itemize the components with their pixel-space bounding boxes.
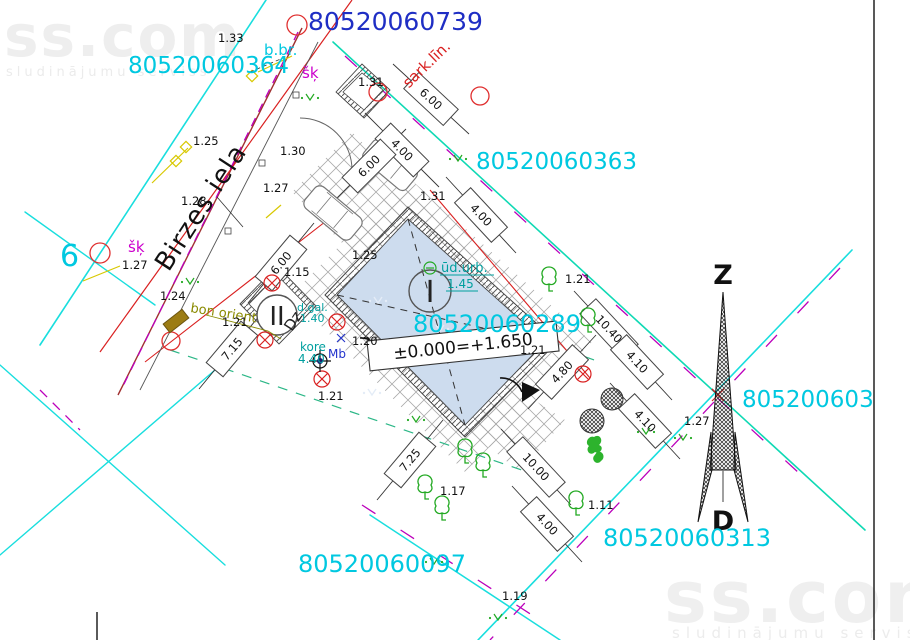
compass-north-label: Z	[713, 260, 733, 291]
spot-elevation: 1.25	[193, 134, 219, 148]
spot-elevation: 1.25	[352, 248, 378, 262]
spot-elevation: 1.21	[565, 272, 591, 286]
spot-elevation: 1.24	[160, 289, 186, 303]
spot-elevation: 1.30	[280, 144, 306, 158]
annotation-material: Mb	[328, 347, 346, 361]
spot-elevation: 1.17	[440, 484, 466, 498]
spot-elevation: 1.31	[420, 189, 446, 203]
parcel-number: 6	[60, 239, 79, 274]
spot-elevation: 1.15	[284, 265, 310, 279]
building-2-number: II	[269, 302, 284, 332]
parcel-number: 80520060097	[298, 550, 466, 578]
boundary-sw-1	[0, 365, 225, 565]
parcel-number: 80520060739	[308, 7, 483, 36]
annotation-ridge-value: 4.40	[298, 352, 325, 366]
bushes	[587, 436, 604, 463]
north-arrow: Z D	[698, 260, 748, 537]
parcel-number: 805200603	[742, 387, 874, 413]
parcel-number: 80520060289	[413, 310, 581, 338]
parcel-number: 80520060363	[476, 149, 637, 175]
spot-elevation: 1.33	[218, 31, 244, 45]
spot-elevation: 1.27	[263, 181, 289, 195]
spot-elevation: 1.20	[352, 334, 378, 348]
annotation-borehole-elev: 1.45	[447, 277, 474, 291]
site-plan-page: ss.com sludinājumu serviss ss.com sludin…	[0, 0, 910, 640]
annotation-borehole: ūd.urb.	[441, 261, 488, 276]
site-plan-drawing: ss.com sludinājumu serviss ss.com sludin…	[0, 0, 910, 640]
annotation-dgal-value: 1.40	[300, 312, 325, 325]
building-1-number: I	[426, 275, 435, 310]
large-tree-canopies	[580, 388, 623, 433]
spot-elevation: 1.21	[520, 343, 546, 357]
spot-elevation: 1.27	[684, 414, 710, 428]
spot-elevation: 1.21	[318, 389, 344, 403]
annotation-shk: šķ	[128, 238, 145, 256]
watermark-bottom-right: ss.com sludinājumu serviss	[664, 555, 910, 640]
spot-elevation: 1.28.	[181, 194, 210, 208]
annotation-b-br: b.br.	[264, 41, 297, 59]
spot-elevation: 1.11	[588, 498, 614, 512]
spot-elevation: 1.27	[122, 258, 148, 272]
spot-elevation: 1.21	[222, 315, 248, 329]
spot-elevation: 1.31	[358, 75, 384, 89]
spot-elevation: 1.19	[502, 589, 528, 603]
concrete-marker	[163, 309, 189, 332]
annotation-shk: šķ	[302, 64, 319, 82]
parcel-number: 80520060313	[603, 524, 771, 552]
